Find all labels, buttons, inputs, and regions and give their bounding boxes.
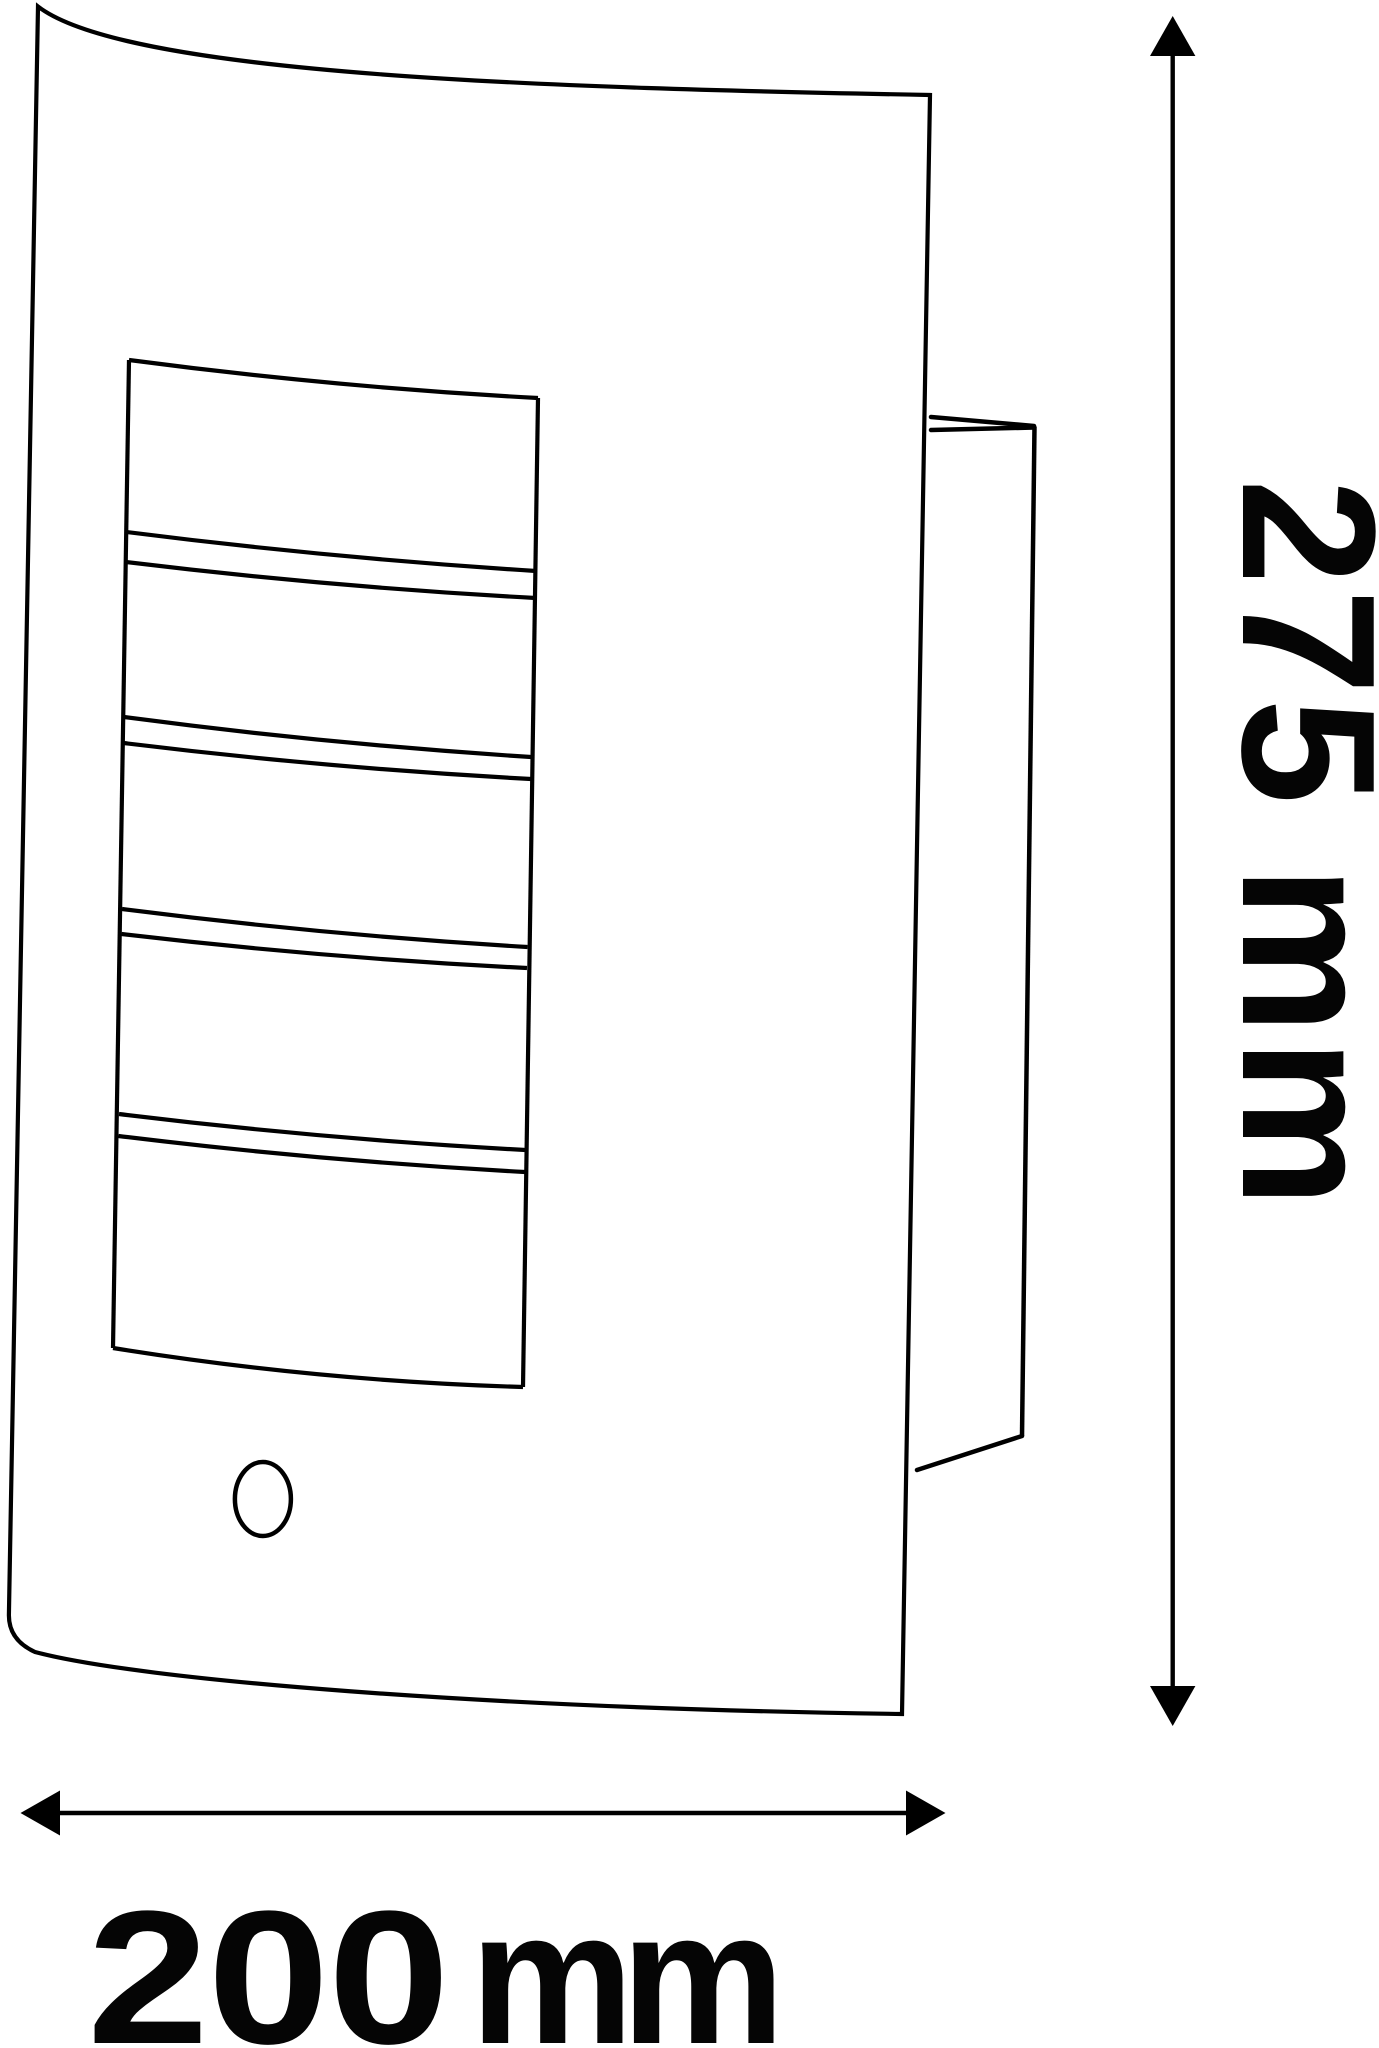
- svg-text:mm: mm: [470, 1871, 774, 2048]
- svg-text:200: 200: [87, 1872, 448, 2048]
- svg-text:275 mm: 275 mm: [1202, 479, 1379, 1212]
